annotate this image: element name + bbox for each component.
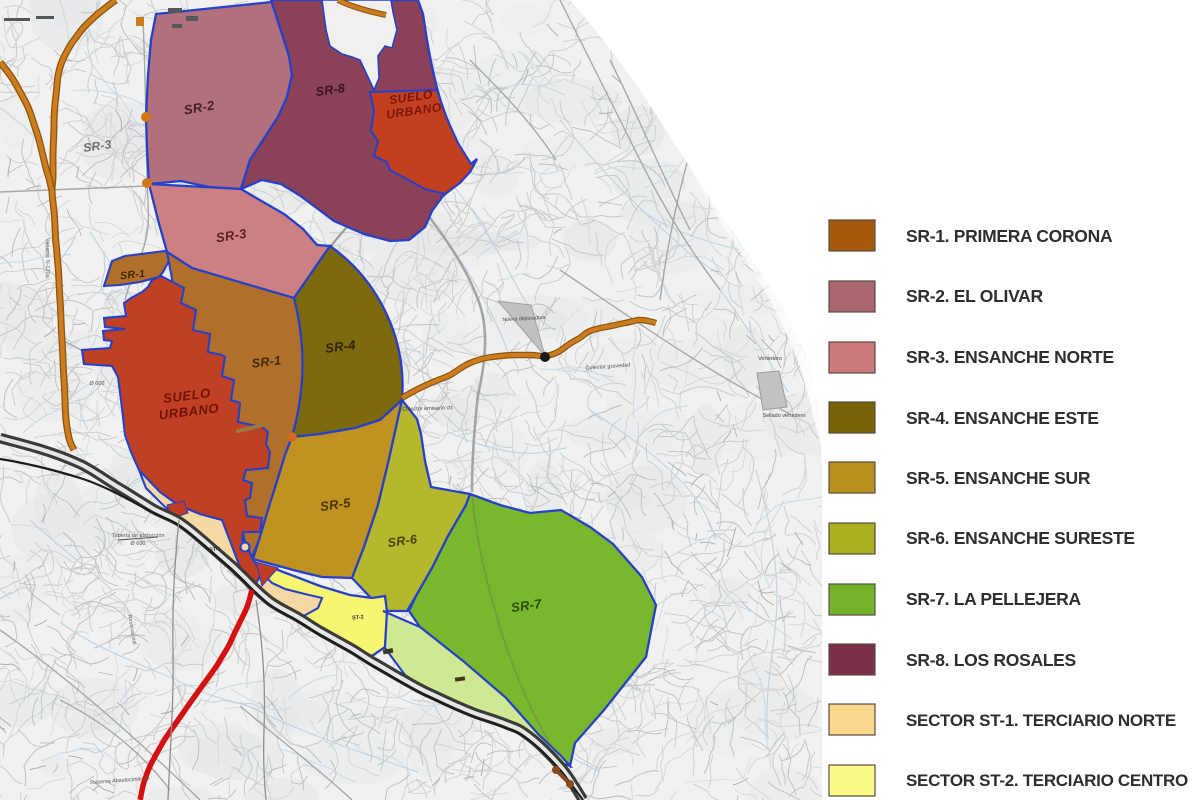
svg-text:SR-1. PRIMERA CORONA: SR-1. PRIMERA CORONA	[906, 226, 1113, 246]
svg-text:SR-2. EL OLIVAR: SR-2. EL OLIVAR	[906, 286, 1043, 306]
svg-text:Variante N-120a: Variante N-120a	[44, 238, 50, 279]
svg-text:SECTOR ST-1. TERCIARIO NORTE: SECTOR ST-1. TERCIARIO NORTE	[906, 711, 1176, 730]
svg-text:ST-1: ST-1	[209, 547, 221, 554]
svg-text:SECTOR ST-2. TERCIARIO CENTRO: SECTOR ST-2. TERCIARIO CENTRO	[906, 771, 1188, 790]
svg-text:Vertedero: Vertedero	[758, 356, 782, 362]
svg-text:SR-4. ENSANCHE ESTE: SR-4. ENSANCHE ESTE	[906, 408, 1099, 428]
svg-text:Sellado vertedero: Sellado vertedero	[762, 413, 805, 419]
svg-text:Ø 600: Ø 600	[131, 541, 146, 547]
svg-text:SR-6. ENSANCHE SURESTE: SR-6. ENSANCHE SURESTE	[906, 528, 1135, 548]
svg-text:SR-7. LA PELLEJERA: SR-7. LA PELLEJERA	[906, 589, 1081, 609]
svg-text:Ø 600: Ø 600	[90, 381, 105, 387]
svg-text:SR-8. LOS ROSALES: SR-8. LOS ROSALES	[906, 650, 1076, 670]
svg-text:SR-3. ENSANCHE NORTE: SR-3. ENSANCHE NORTE	[906, 347, 1114, 367]
svg-text:ST-2: ST-2	[352, 615, 364, 622]
svg-text:SR-5. ENSANCHE SUR: SR-5. ENSANCHE SUR	[906, 468, 1091, 488]
